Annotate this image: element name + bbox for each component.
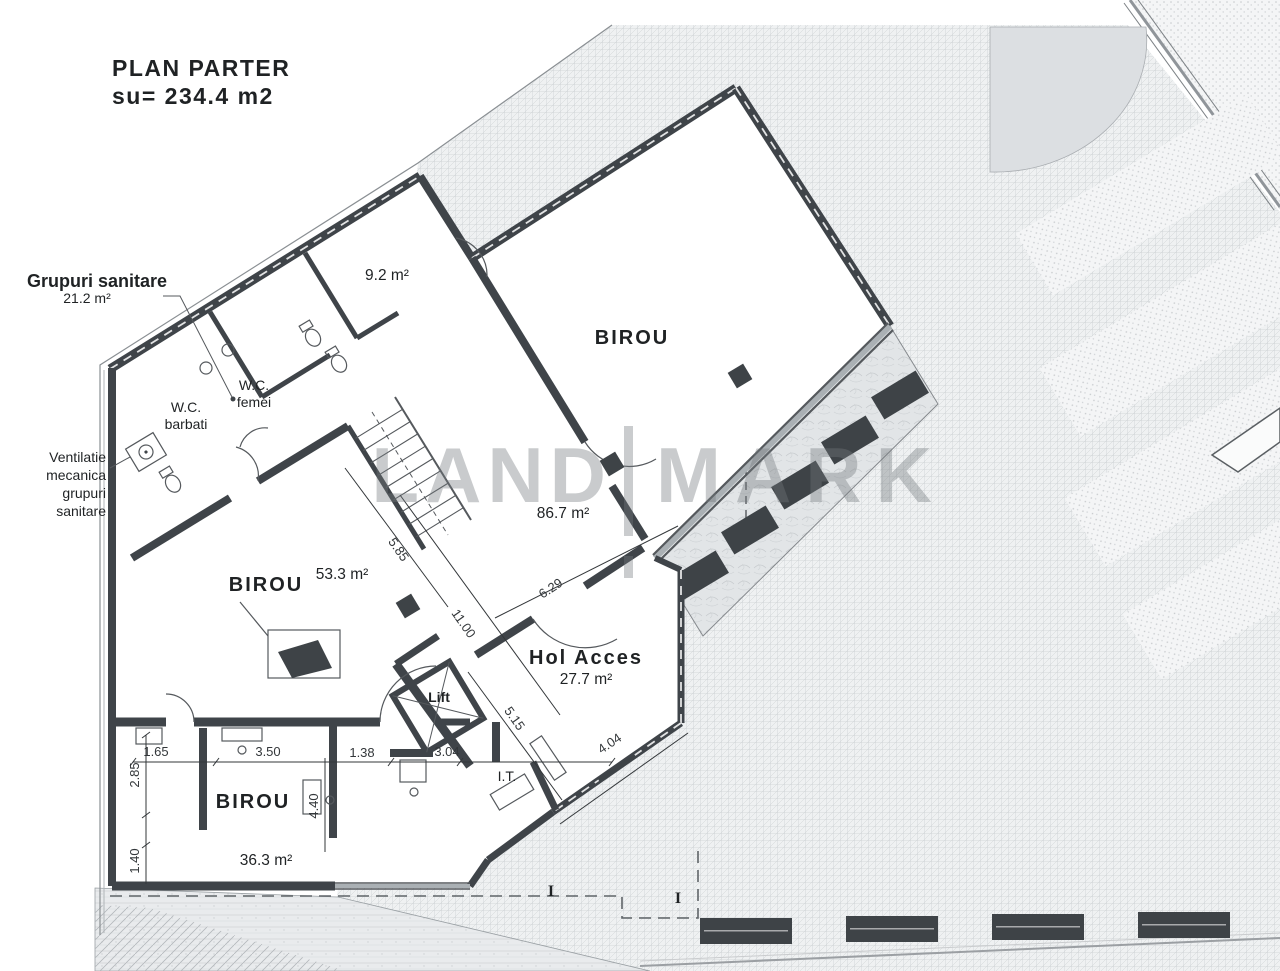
birou-mic-area: 36.3 m² — [240, 852, 293, 869]
planter — [992, 914, 1084, 940]
birou-receptie-area: 53.3 m² — [316, 566, 369, 583]
it-label: I.T. — [498, 768, 517, 784]
hol-acces-label: Hol Acces — [529, 647, 643, 669]
plan-title-line1: PLAN PARTER — [112, 55, 290, 81]
dim-1-38: 1.38 — [349, 745, 374, 760]
watermark-bar-icon — [624, 426, 633, 536]
floorplan-drawing: I I — [0, 0, 1280, 971]
grupuri-sanitare-area: 21.2 m² — [63, 290, 111, 306]
svg-text:sanitare: sanitare — [56, 503, 106, 519]
birou-mare-label: BIROU — [595, 327, 669, 349]
dim-2-85: 2.85 — [127, 762, 142, 787]
birou-receptie-label: BIROU — [229, 574, 303, 596]
grupuri-sanitare-label: Grupuri sanitare — [27, 271, 167, 291]
svg-text:mecanica: mecanica — [46, 467, 106, 483]
svg-text:grupuri: grupuri — [62, 485, 106, 501]
birou-mic-label: BIROU — [216, 791, 290, 813]
watermark-dot-icon — [624, 556, 633, 578]
wc-barbati-line2: barbati — [165, 416, 208, 432]
lift-label: Lift — [428, 689, 450, 705]
section-marker-2: I — [675, 890, 681, 907]
planter — [1138, 912, 1230, 938]
svg-text:Ventilatie: Ventilatie — [49, 449, 106, 465]
dim-1-40: 1.40 — [127, 848, 142, 873]
planter — [700, 918, 792, 944]
planter — [846, 916, 938, 942]
section-marker-1: I — [548, 883, 554, 900]
wc-femei-line1: W.C. — [239, 377, 269, 393]
plan-title-line2: su= 234.4 m2 — [112, 83, 274, 109]
hol-acces-area: 27.7 m² — [560, 671, 613, 688]
wc-femei-line2: femei — [237, 394, 271, 410]
dim-1-65: 1.65 — [143, 744, 168, 759]
dim-3-04: 3.04 — [434, 744, 459, 759]
dim-3-50: 3.50 — [255, 744, 280, 759]
wc-barbati-line1: W.C. — [171, 399, 201, 415]
watermark-left: LAND — [371, 431, 612, 519]
grupuri-leader-dot — [231, 397, 236, 402]
floorplan-page: I I — [0, 0, 1280, 971]
watermark-right: MARK — [656, 431, 946, 519]
dim-4-40: 4.40 — [306, 793, 321, 818]
room-92-area: 9.2 m² — [365, 267, 409, 284]
